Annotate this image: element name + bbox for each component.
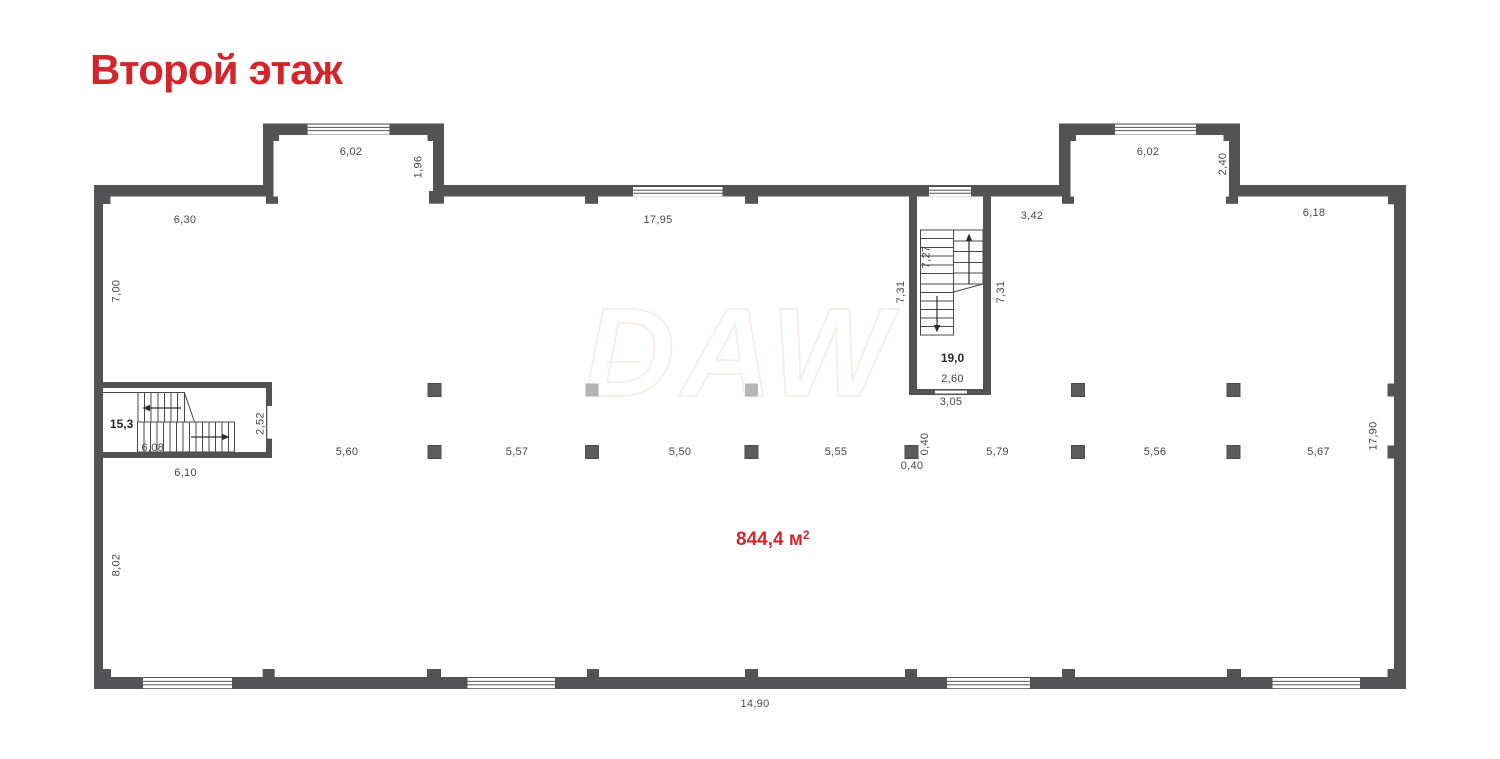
svg-text:14,90: 14,90 (740, 698, 769, 710)
svg-text:8,02: 8,02 (111, 554, 123, 577)
svg-text:5,67: 5,67 (1307, 446, 1330, 458)
svg-text:6,02: 6,02 (340, 146, 363, 158)
svg-text:17,90: 17,90 (1368, 421, 1380, 450)
svg-text:3,05: 3,05 (940, 396, 963, 408)
svg-text:5,55: 5,55 (825, 446, 848, 458)
svg-text:6,02: 6,02 (1137, 146, 1160, 158)
svg-text:2,40: 2,40 (1217, 153, 1229, 176)
svg-text:0,40: 0,40 (901, 460, 924, 472)
svg-text:19,0: 19,0 (941, 351, 965, 365)
svg-text:DAW: DAW (584, 282, 899, 423)
svg-text:6,08: 6,08 (141, 442, 164, 454)
svg-text:6,10: 6,10 (174, 467, 197, 479)
svg-text:17,95: 17,95 (643, 214, 672, 226)
svg-text:5,50: 5,50 (669, 446, 692, 458)
svg-text:5,60: 5,60 (336, 446, 359, 458)
svg-text:7,27: 7,27 (921, 246, 933, 269)
svg-text:844,4 м2: 844,4 м2 (736, 528, 810, 550)
svg-text:0,40: 0,40 (919, 433, 931, 456)
svg-text:7,00: 7,00 (111, 280, 123, 303)
svg-text:Второй этаж: Второй этаж (90, 46, 344, 93)
svg-text:6,18: 6,18 (1303, 207, 1326, 219)
svg-text:7,31: 7,31 (895, 281, 907, 304)
svg-text:2,52: 2,52 (255, 412, 267, 435)
svg-text:6,30: 6,30 (174, 214, 197, 226)
svg-text:5,57: 5,57 (506, 446, 529, 458)
svg-text:15,3: 15,3 (110, 417, 134, 431)
svg-text:7,31: 7,31 (995, 281, 1007, 304)
svg-text:5,79: 5,79 (986, 446, 1009, 458)
svg-text:1,96: 1,96 (413, 156, 425, 179)
svg-text:3,42: 3,42 (1021, 210, 1044, 222)
svg-text:2,60: 2,60 (941, 373, 964, 385)
svg-text:5,56: 5,56 (1144, 446, 1167, 458)
